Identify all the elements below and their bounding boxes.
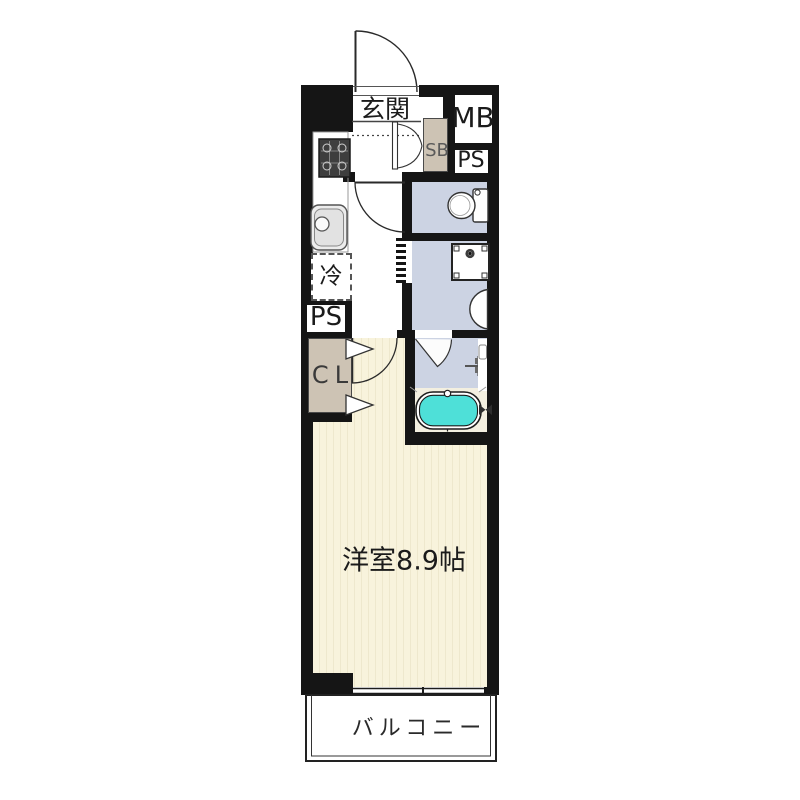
wall-washroom-left — [402, 283, 412, 332]
washroom-floor — [412, 241, 487, 330]
bathtub-area-floor — [415, 388, 487, 432]
shoe-box-label: SB — [425, 142, 449, 160]
kitchen-counter — [313, 132, 348, 252]
wall-closet-bottom — [308, 413, 352, 422]
refrigerator-label: 冷 — [320, 266, 343, 289]
meter-box-label: MB — [451, 104, 494, 132]
wall-bathroom-bottom — [405, 432, 499, 445]
entrance-step-lines — [352, 122, 421, 136]
wall-room-top-a — [397, 330, 415, 338]
wall-hall-bottom — [410, 172, 499, 182]
washroom-sliding-door — [396, 238, 406, 283]
wall-room-top-b — [452, 330, 499, 338]
shoe-box-doors — [393, 122, 423, 169]
wall-hall-stub — [343, 172, 355, 182]
entrance-door-swing — [353, 31, 419, 96]
kitchen-door-swing — [355, 182, 405, 232]
main-room-label: 洋室8.9帖 — [342, 548, 466, 575]
toilet-room-floor — [412, 182, 487, 233]
pipe-space-lower-label: PS — [310, 304, 342, 330]
entrance-label: 玄関 — [360, 97, 410, 122]
balcony-label: バルコニー — [352, 718, 487, 740]
closet-label: CL — [312, 363, 354, 387]
kitchen-sink-fixture — [311, 205, 347, 250]
floorplan-canvas: 玄関 MB SB PS 冷 PS CL 洋室8.9帖 バルコニー — [0, 0, 800, 800]
wall-bathroom-left — [405, 338, 415, 445]
pipe-space-upper-label: PS — [457, 150, 484, 172]
wall-toilet-washroom — [402, 233, 499, 241]
wall-toilet-left — [402, 172, 412, 235]
